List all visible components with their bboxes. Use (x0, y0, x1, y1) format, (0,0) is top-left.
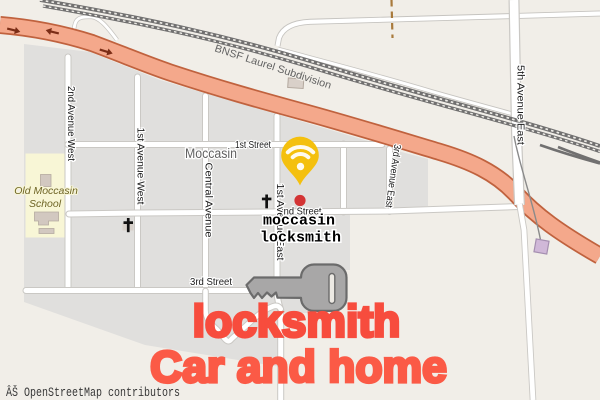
svg-text:ÂŠ OpenStreetMap contributors: ÂŠ OpenStreetMap contributors (6, 385, 180, 400)
svg-text:5th Avenue East: 5th Avenue East (515, 65, 526, 145)
svg-text:locksmith: locksmith (260, 230, 341, 247)
svg-text:1st Avenue West: 1st Avenue West (135, 128, 146, 205)
svg-text:School: School (29, 198, 62, 210)
svg-text:Moccasin: Moccasin (185, 146, 237, 161)
svg-text:1st Street: 1st Street (235, 139, 271, 151)
svg-text:2nd Avenue West: 2nd Avenue West (65, 86, 76, 161)
svg-text:Old Moccasin: Old Moccasin (14, 185, 78, 197)
svg-text:3rd Street: 3rd Street (190, 276, 232, 288)
svg-text:Central Avenue: Central Avenue (203, 163, 214, 238)
svg-text:moccasin: moccasin (263, 213, 335, 230)
svg-text:Car and home: Car and home (150, 343, 447, 392)
svg-text:locksmith: locksmith (193, 298, 401, 347)
